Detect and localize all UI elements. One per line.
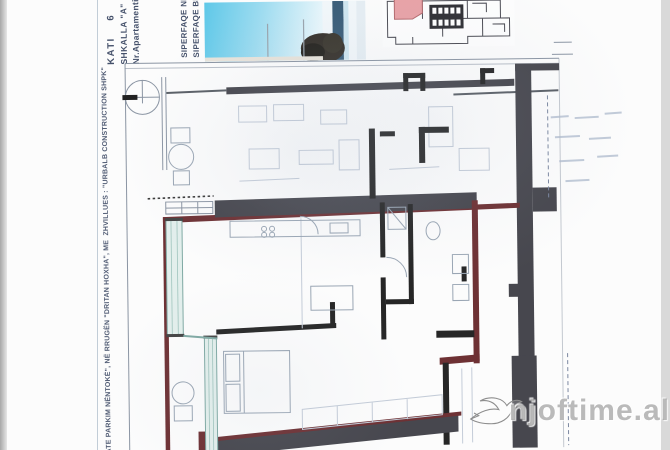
glazing-strip-upper [165, 218, 184, 337]
window-schedule-box [148, 196, 214, 214]
interior-walls [214, 126, 475, 341]
bed [224, 351, 291, 414]
listing-photo: KATI 6 SHKALLA "A" Nr.Apartamentit D SIP… [0, 0, 670, 450]
bottom-wall [205, 415, 458, 450]
compass-icon [122, 80, 159, 114]
floor-plan [0, 0, 670, 450]
door-swing-arc [386, 257, 406, 277]
balcony-dining-set-lower [172, 382, 194, 421]
north-needle [122, 95, 137, 100]
illegible-annotation-smudges [551, 112, 623, 181]
balcony-dining-set-upper [168, 128, 194, 185]
door-swing-arc-2 [300, 216, 318, 234]
structural-core-wall [506, 63, 560, 448]
exterior-walls [226, 63, 559, 97]
scanned-drawing: KATI 6 SHKALLA "A" Nr.Apartamentit D SIP… [0, 0, 670, 450]
